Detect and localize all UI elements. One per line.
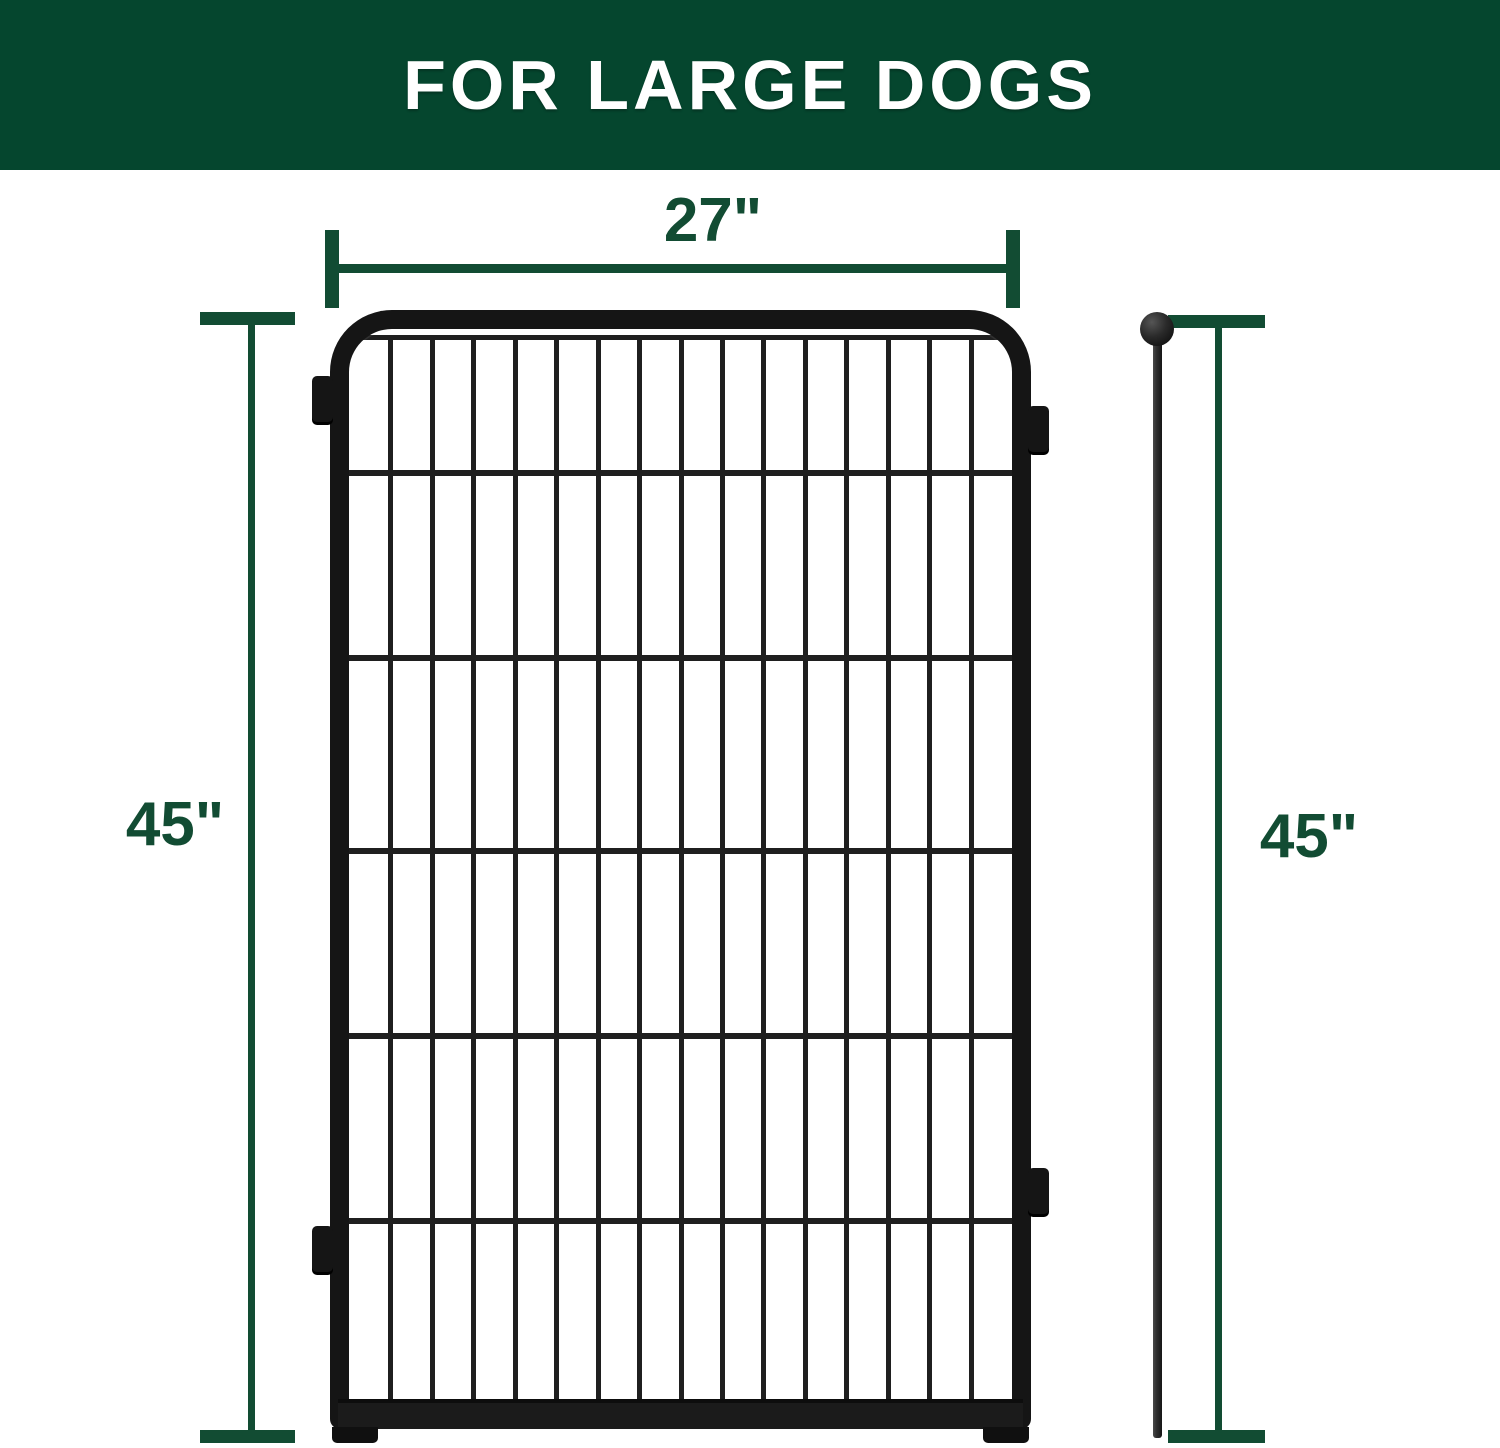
connector-tab-right-top: [1028, 406, 1049, 452]
product-infographic: FOR LARGE DOGS 27" 45" 45": [0, 0, 1500, 1448]
width-dimension-tick-right: [1006, 230, 1020, 308]
panel-foot-left: [332, 1427, 378, 1443]
panel-foot-right: [983, 1427, 1029, 1443]
width-dimension-label: 27": [613, 190, 813, 252]
connector-tab-right-bottom: [1028, 1168, 1049, 1214]
height-left-cap-top: [200, 312, 295, 325]
width-dimension-tick-left: [325, 230, 339, 308]
stake-ball-top: [1140, 312, 1174, 346]
height-right-cap-top: [1168, 315, 1265, 328]
height-right-cap-bottom: [1168, 1430, 1265, 1443]
height-left-line: [248, 316, 255, 1438]
panel-bottom-rail: [338, 1399, 1023, 1429]
stake-rod: [1153, 338, 1162, 1438]
header-banner: FOR LARGE DOGS: [0, 0, 1500, 170]
connector-tab-left-top: [312, 376, 333, 422]
connector-tab-left-bottom: [312, 1226, 333, 1272]
height-left-cap-bottom: [200, 1430, 295, 1443]
panel-frame: [330, 310, 1031, 1429]
height-right-label: 45": [1244, 806, 1374, 868]
banner-title: FOR LARGE DOGS: [403, 45, 1097, 125]
height-left-label: 45": [110, 794, 240, 856]
height-right-line: [1215, 316, 1222, 1438]
pen-panel-illustration: [330, 310, 1031, 1443]
width-dimension-line: [332, 264, 1020, 273]
